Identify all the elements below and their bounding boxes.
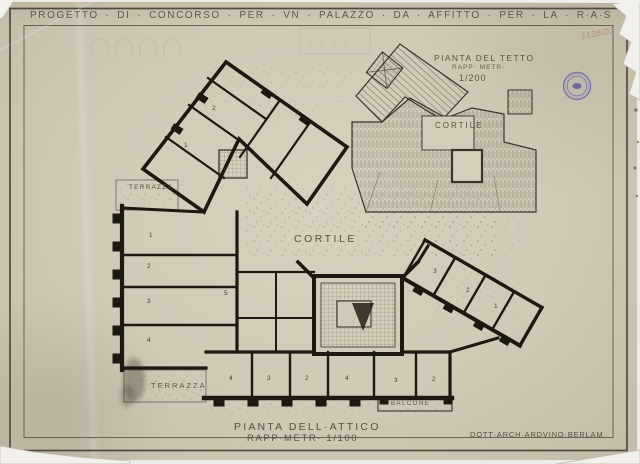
roof-plan-scale-label: RAPP· METR·: [452, 64, 505, 71]
terrace-upper-label: TERRAZZA: [129, 184, 173, 191]
room-number: 3: [394, 377, 398, 384]
room-number: 3: [267, 375, 271, 382]
terrace-lower-label: TERRAZZA: [151, 381, 207, 390]
roof-plan-title: PIANTA DEL TETTO: [434, 53, 535, 63]
drawing-svg: [0, 0, 640, 464]
room-number: 1: [494, 303, 498, 310]
room-number: 5: [224, 290, 228, 297]
room-number: 4: [229, 375, 233, 382]
caption-scale: RAPP·METR· 1/100: [247, 433, 358, 444]
room-number: 3: [147, 298, 151, 305]
roof-plan-scale-value: 1/200: [459, 73, 487, 83]
drawing-title: PROGETTO · DI · CONCORSO · PER · VN · PA…: [30, 10, 612, 21]
architect-signature: DOTT·ARCH·ARDVINO·BERLAM: [470, 430, 603, 439]
room-number: 2: [466, 287, 470, 294]
room-number: 2: [432, 376, 436, 383]
balcony-label: BALCONE: [391, 401, 430, 407]
room-number: 1: [184, 142, 188, 149]
circular-ink-stamp-icon: [564, 73, 591, 100]
room-number: 2: [305, 375, 309, 382]
edge-specks: [633, 108, 639, 197]
room-number: 4: [147, 337, 151, 344]
caption-title: PIANTA DELL·ATTICO: [234, 421, 381, 433]
courtyard-label: CORTILE: [294, 233, 357, 245]
roof-courtyard-label: CORTILE: [435, 121, 484, 130]
room-number: 1: [149, 232, 153, 239]
ghost-watermark: [92, 28, 370, 58]
room-number: 3: [433, 268, 437, 275]
room-number: 2: [147, 263, 151, 270]
room-number: 4: [345, 375, 349, 382]
room-number: 2: [212, 105, 216, 112]
